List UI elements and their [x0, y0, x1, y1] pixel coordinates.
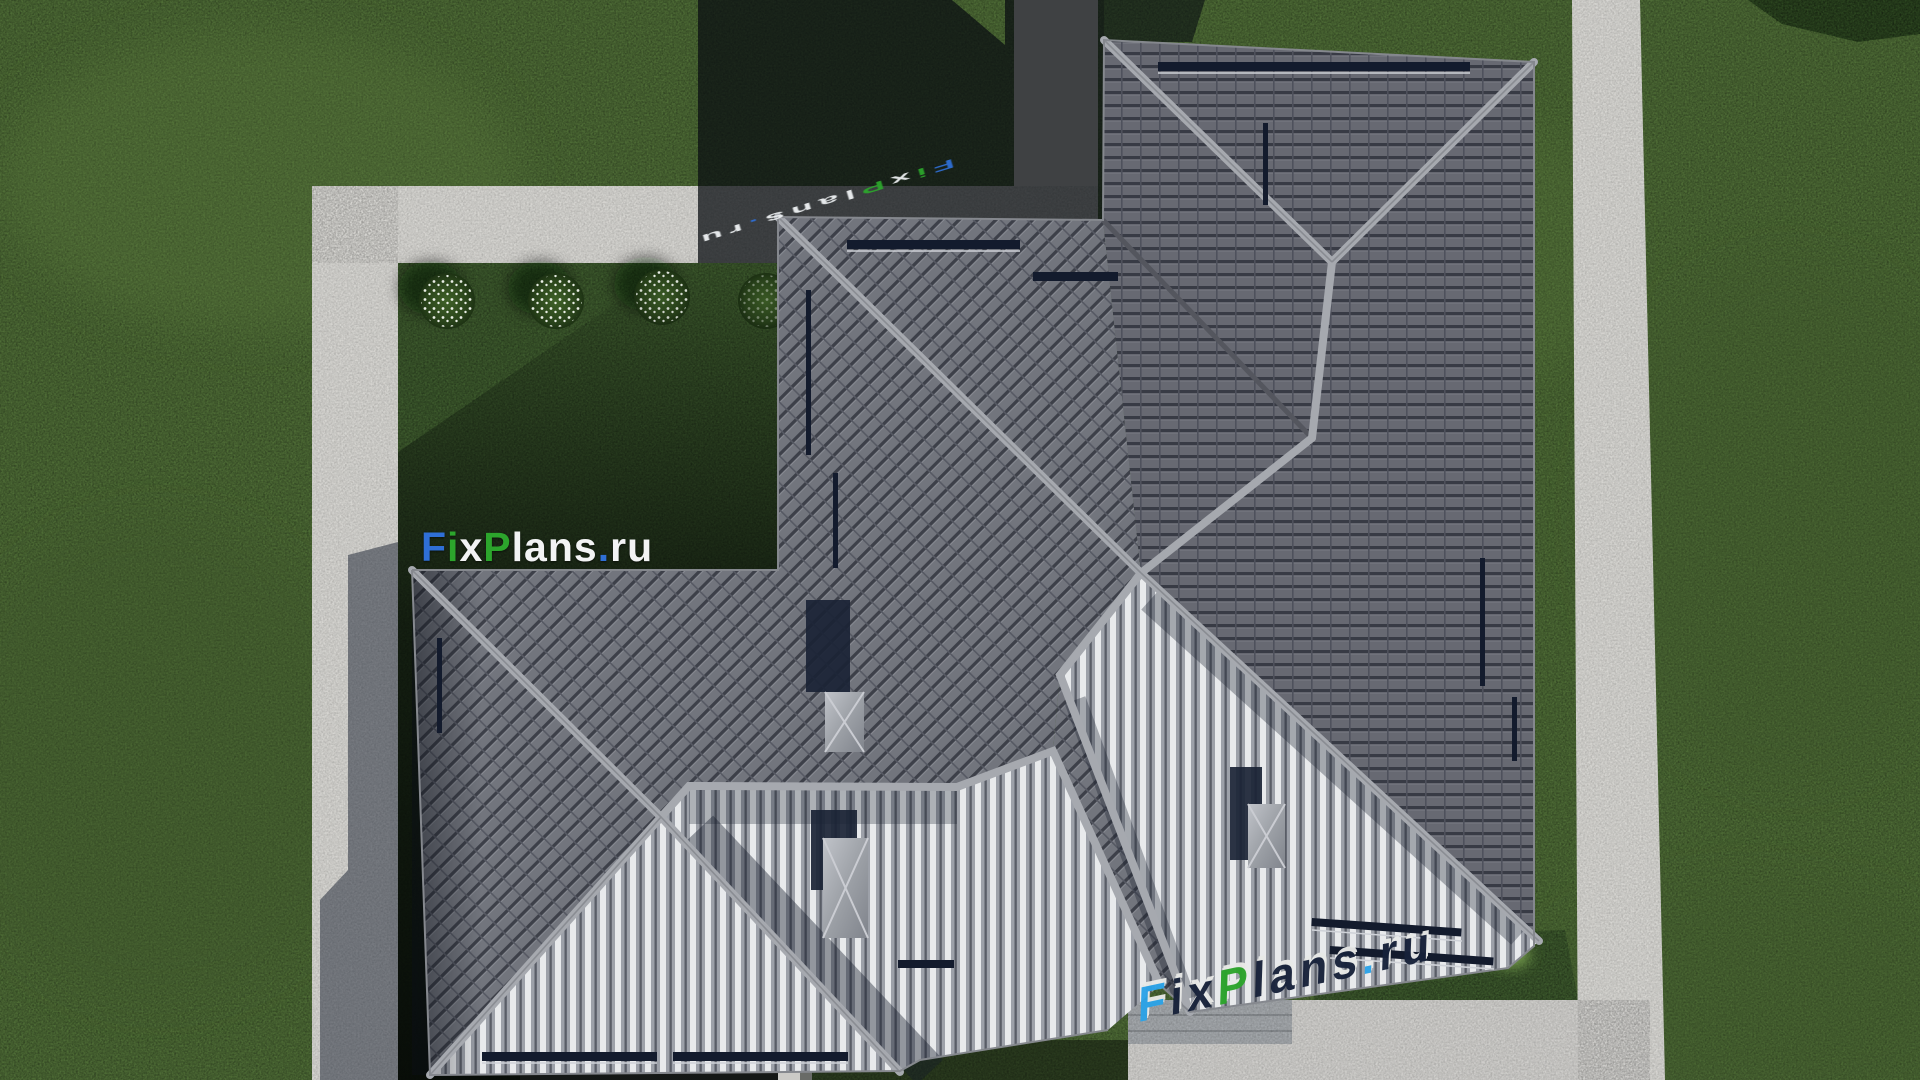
logo-letter: n [1299, 939, 1333, 996]
logo-letter: x [1187, 963, 1219, 1019]
logo-letter: r [610, 527, 627, 568]
logo-letter: a [524, 527, 548, 568]
logo-letter: l [1252, 952, 1271, 1005]
watermark-logo: FixPlans.ru [421, 527, 653, 568]
logo-letter: n [548, 527, 574, 568]
logo-letter: F [1137, 973, 1171, 1030]
logo-letter: P [483, 527, 511, 568]
logo-letter: i [1170, 970, 1189, 1023]
logo-letter: x [459, 527, 483, 568]
logo-letter: F [421, 527, 447, 568]
logo-letter: u [1401, 917, 1435, 974]
logo-letter: s [574, 527, 598, 568]
site-plan-svg [0, 0, 1920, 1080]
logo-letter: a [1269, 946, 1301, 1002]
logo-letter: i [447, 527, 459, 568]
aerial-house-render: FixPlans.ru FixPlans.ru FixPlans.ru [0, 0, 1920, 1080]
logo-letter: . [1361, 929, 1380, 982]
logo-letter: u [627, 527, 653, 568]
logo-letter: . [598, 527, 610, 568]
logo-letter: l [512, 527, 524, 568]
logo-letter: s [1331, 932, 1363, 988]
logo-letter: r [1379, 924, 1403, 979]
logo-letter: P [1217, 956, 1254, 1013]
